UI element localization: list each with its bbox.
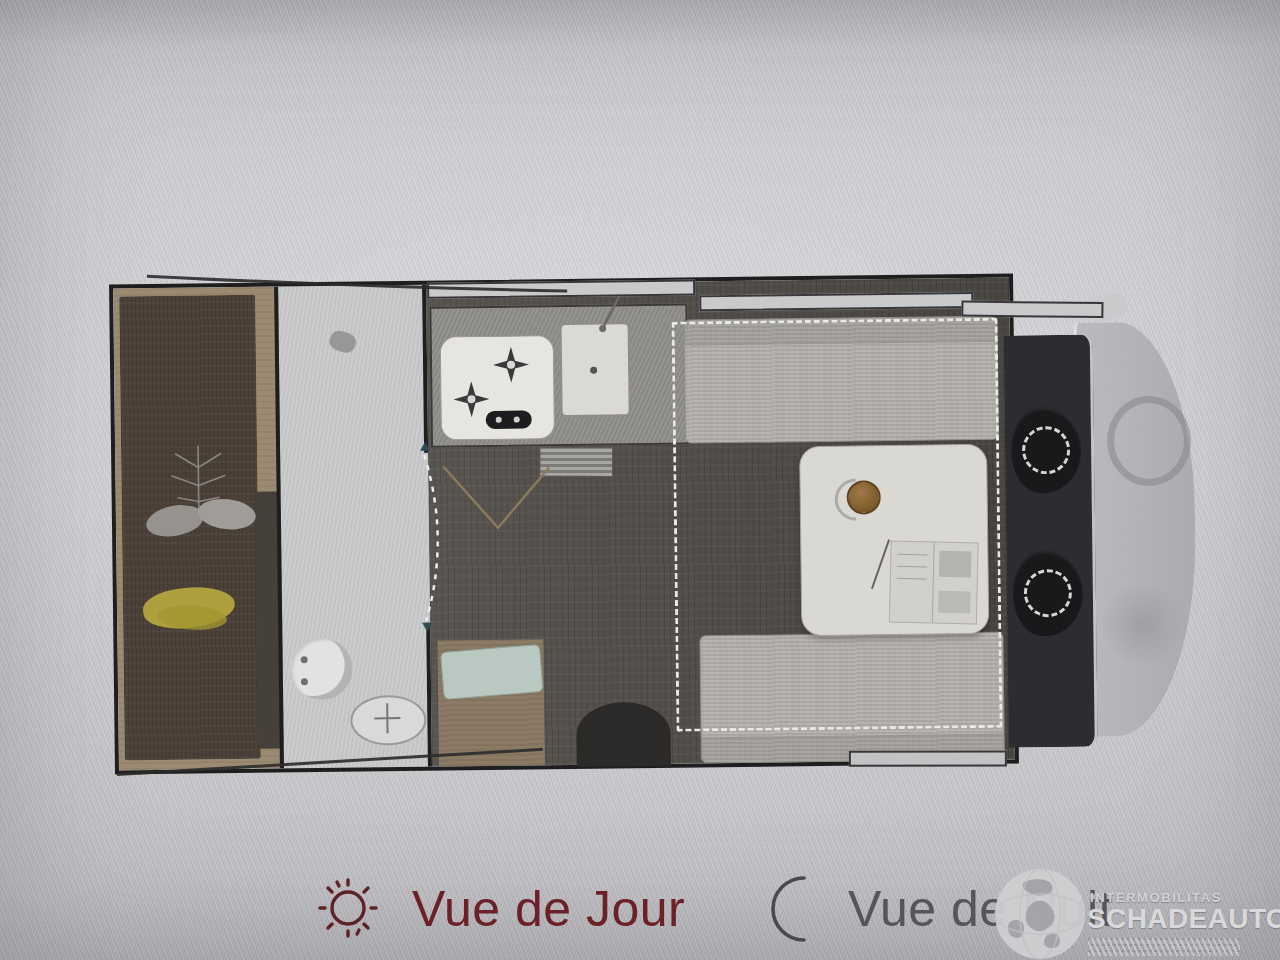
- shower-door-arc: [424, 455, 439, 621]
- cabinet-open-lines: [443, 465, 550, 528]
- globe-icon: [994, 868, 1086, 960]
- body-outline-top: [147, 271, 567, 296]
- day-view-toggle[interactable]: Vue de Jour: [312, 868, 712, 948]
- day-view-label[interactable]: Vue de Jour: [412, 880, 685, 938]
- body-outline-bottom: [117, 749, 543, 774]
- watermark: INTERMOBILITAS SCHADEAUTOS.NL: [992, 862, 1280, 960]
- screen-photo: Vue de Jour Vue de Nuit INTERMOBILITAS S…: [0, 0, 1280, 960]
- plan-linework: [97, 255, 1203, 790]
- sun-icon: [312, 872, 384, 944]
- kitchen-faucet: [603, 296, 619, 326]
- arc-arrow: [420, 442, 430, 451]
- arc-arrow: [422, 623, 432, 632]
- watermark-hatch-pattern: [1088, 938, 1240, 956]
- motorhome-floorplan: [97, 255, 1203, 790]
- moon-icon: [758, 870, 834, 948]
- watermark-brand-large: SCHADEAUTOS.NL: [1087, 903, 1280, 935]
